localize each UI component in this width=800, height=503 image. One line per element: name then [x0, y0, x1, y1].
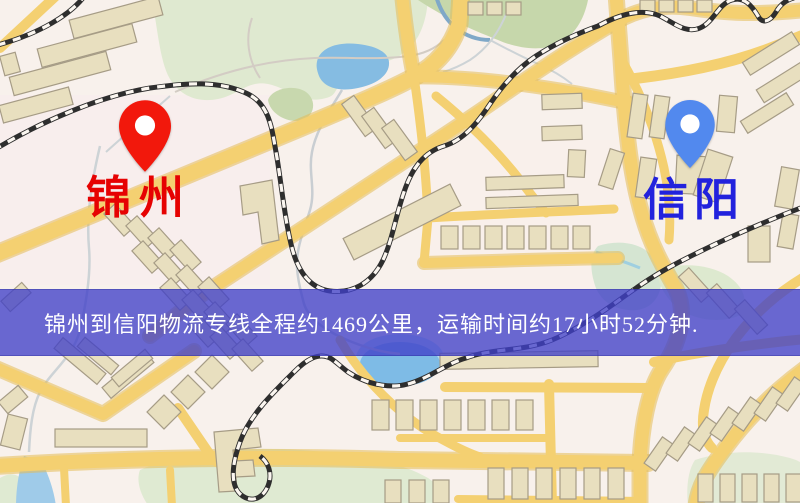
pin-shape	[665, 100, 714, 168]
destination-pin-icon	[665, 100, 715, 168]
origin-city-label: 锦州	[86, 176, 192, 221]
route-summary-text: 锦州到信阳物流专线全程约1469公里，运输时间约17小时52分钟.	[44, 307, 699, 339]
pin-shape	[119, 100, 171, 172]
destination-city-label: 信阳	[643, 178, 745, 223]
pin-hole	[135, 115, 155, 135]
route-summary-banner: 锦州到信阳物流专线全程约1469公里，运输时间约17小时52分钟.	[0, 289, 800, 356]
logistics-route-map: 锦州 信阳 锦州到信阳物流专线全程约1469公里，运输时间约17小时52分钟.	[0, 0, 800, 503]
origin-pin-icon	[119, 100, 171, 172]
map-image	[0, 0, 800, 503]
pin-hole	[680, 114, 699, 133]
